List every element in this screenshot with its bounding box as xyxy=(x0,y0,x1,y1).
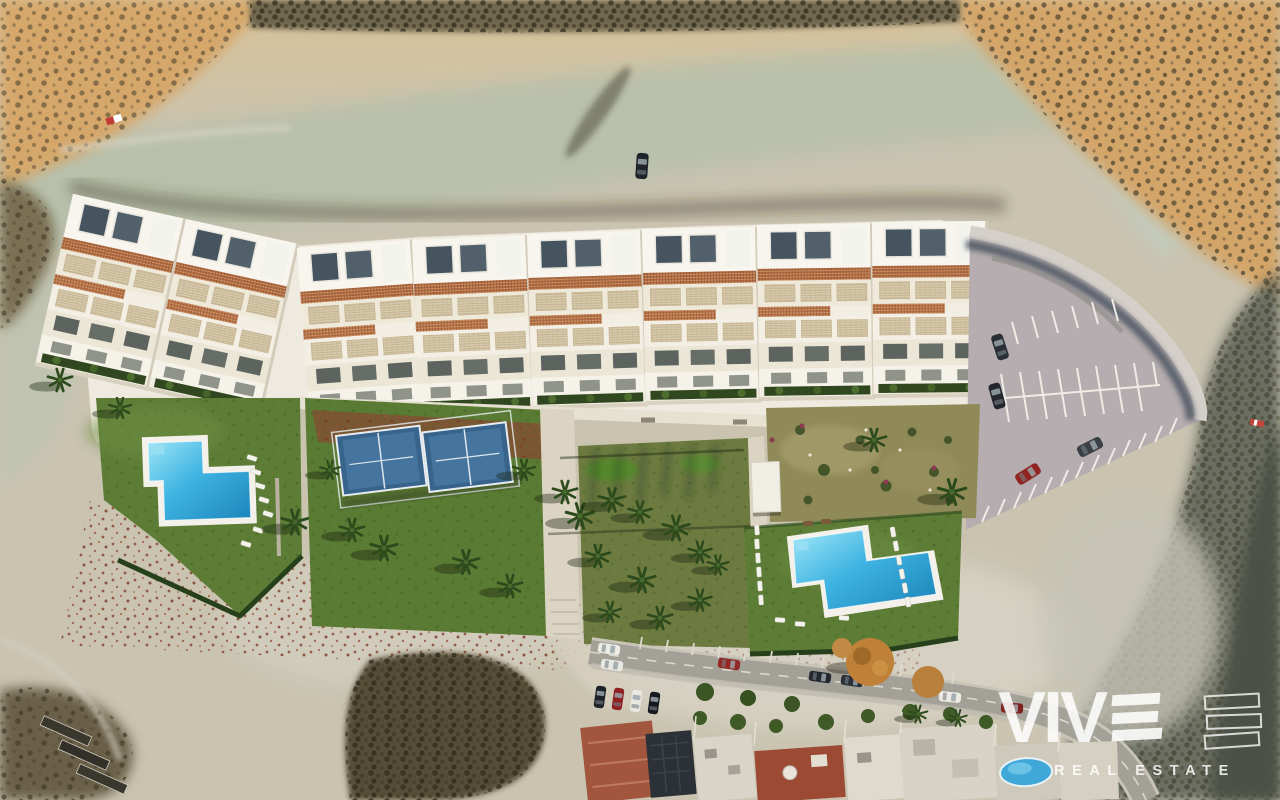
apartment-block xyxy=(757,223,875,401)
padel-court xyxy=(336,426,427,496)
aerial-development-photo: VIV REAL ESTATE xyxy=(0,0,1280,800)
house-pool-deck xyxy=(995,742,1064,800)
garden-wall xyxy=(277,478,279,556)
apartment-block xyxy=(527,230,648,410)
pool-steps xyxy=(150,444,164,454)
padel-court xyxy=(422,422,513,492)
house-white xyxy=(844,734,904,800)
house-white-multi xyxy=(900,724,1000,800)
apartment-block xyxy=(642,227,762,405)
pool-steps xyxy=(796,541,809,551)
house-red-tile xyxy=(754,745,845,800)
apartment-block xyxy=(412,235,536,416)
house-white xyxy=(693,734,756,800)
house-solar-roof xyxy=(645,730,696,798)
scrub-mound-tx xyxy=(345,653,545,800)
house-white xyxy=(1059,741,1119,800)
dry-patch xyxy=(880,448,960,492)
parked-car-dirt xyxy=(635,153,649,180)
chalk-right xyxy=(1040,500,1220,740)
scene-canvas xyxy=(0,0,1280,800)
garden-shed xyxy=(751,462,781,517)
apartment-block xyxy=(297,240,426,424)
